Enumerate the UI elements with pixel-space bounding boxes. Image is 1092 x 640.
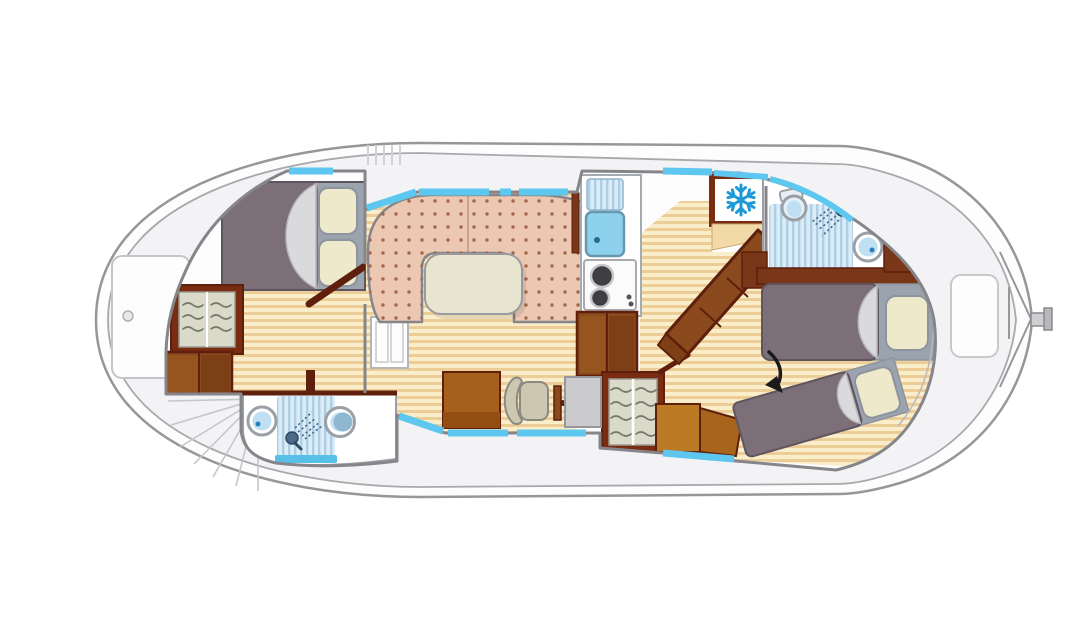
vanity-desk [565, 377, 601, 427]
stern-deck [951, 275, 998, 357]
stern-locker [951, 275, 998, 357]
single-bed [762, 284, 934, 360]
rudder-tiller [1031, 308, 1052, 330]
bow-storage-steps [166, 352, 232, 394]
galley-sink [586, 212, 624, 256]
vanity-area [443, 372, 601, 428]
stove-icon [584, 260, 636, 310]
window-strip [663, 171, 712, 172]
galley-steps [577, 312, 637, 376]
boat-floor-plan [0, 0, 1092, 640]
galley-wall-strip [572, 193, 579, 253]
pillow [319, 188, 357, 234]
door-panel [371, 317, 408, 368]
floor-plan-canvas [0, 0, 1092, 640]
dinette-table [425, 254, 522, 314]
bench-band [443, 412, 500, 428]
window-strip [714, 173, 768, 177]
door-hinge [361, 264, 366, 269]
galley-sink-drain [594, 237, 600, 243]
hatch-ring-icon [123, 311, 133, 321]
bow-cabin-floor [230, 286, 366, 394]
forward-bathroom-door-post [306, 370, 315, 394]
forward-shower-tray [275, 455, 337, 463]
galley [572, 175, 641, 376]
forward-toilet-icon [326, 408, 355, 437]
drainboard [587, 179, 623, 210]
bow-wardrobe [171, 285, 243, 354]
chair [505, 378, 548, 424]
forward-sink-icon [248, 407, 276, 435]
